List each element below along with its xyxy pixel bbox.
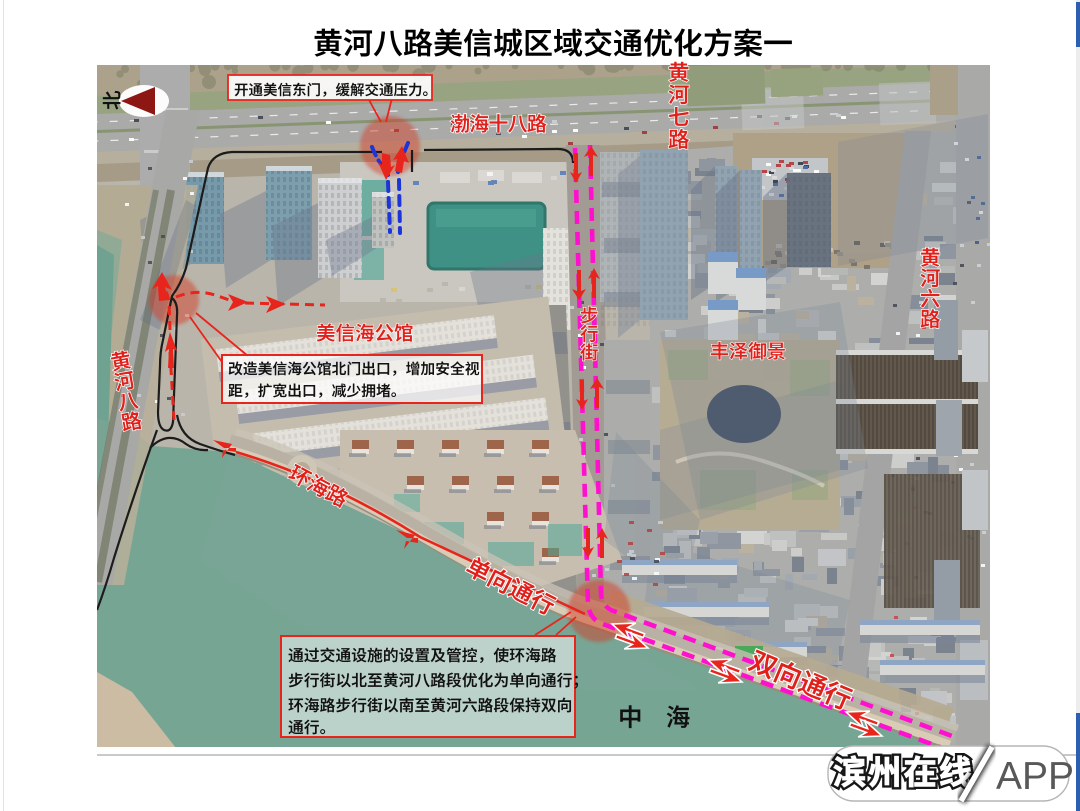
svg-text:APP: APP bbox=[996, 755, 1074, 798]
